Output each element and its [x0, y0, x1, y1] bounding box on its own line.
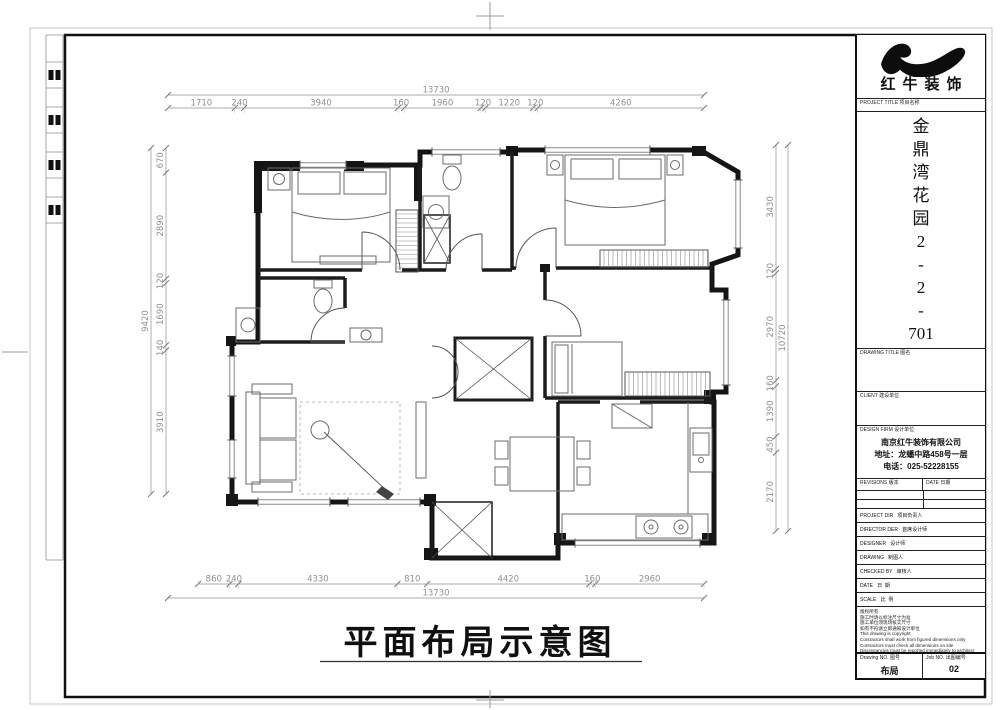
personnel-row: PROJECT DIR 项目负责人: [857, 509, 985, 523]
svg-text:160: 160: [393, 99, 409, 109]
svg-text:2970: 2970: [766, 316, 776, 338]
project-title-char: 2: [917, 230, 926, 253]
svg-text:1220: 1220: [498, 99, 520, 109]
design-firm-label: DESIGN FIRM 设计单位: [857, 426, 985, 434]
interior-walls: [258, 152, 714, 543]
project-title-label: PROJECT TITLE 项目名称: [857, 99, 985, 107]
floor-plan-canvas: 1373017102403940160196012012201204260860…: [0, 0, 1000, 710]
revisions-label: REVISIONS 版本: [857, 479, 923, 490]
project-title-char: 鼎: [913, 138, 930, 161]
personnel-row: DRAWING 制图人: [857, 551, 985, 565]
title-block: 红牛装饰 PROJECT TITLE 项目名称 金鼎湾花园2-2-701 DRA…: [855, 35, 985, 680]
svg-text:140: 140: [156, 340, 166, 356]
notes-block: 版权所有施工时请以标注尺寸为准施工单位须现场核实尺寸如有不符请立即通知设计单位T…: [857, 607, 985, 654]
svg-text:1960: 1960: [432, 99, 454, 109]
svg-text:120: 120: [527, 99, 543, 109]
svg-text:13730: 13730: [422, 589, 449, 599]
personnel-rows: PROJECT DIR 项目负责人DIRECTOR DER 首席设计师DESIG…: [857, 509, 985, 607]
drawing-no-label: Drawing NO. 图号: [857, 654, 922, 662]
revision-row-empty: [857, 500, 985, 509]
design-firm-name: 南京红牛装饰有限公司: [857, 437, 985, 449]
personnel-row: DIRECTOR DER 首席设计师: [857, 523, 985, 537]
svg-text:1390: 1390: [766, 400, 776, 422]
project-title-char: 湾: [913, 161, 930, 184]
svg-text:3910: 3910: [156, 411, 166, 433]
svg-text:120: 120: [475, 99, 491, 109]
client-label: CLIENT 建设单位: [857, 392, 985, 400]
svg-text:13730: 13730: [422, 86, 449, 96]
drawing-sheet: 1373017102403940160196012012201204260860…: [0, 0, 1000, 710]
project-title-char: -: [918, 253, 924, 276]
project-title-char: 2: [917, 276, 926, 299]
project-title-char: 金: [913, 115, 930, 138]
personnel-row: CHECKED BY 审核人: [857, 565, 985, 579]
svg-text:120: 120: [766, 263, 776, 279]
svg-text:120: 120: [156, 273, 166, 289]
personnel-row: DESIGNER 设计师: [857, 537, 985, 551]
job-no-label: Job NO. 出图编号: [923, 654, 985, 662]
drawing-no-value: 布局: [857, 664, 922, 677]
design-firm-info: 南京红牛装饰有限公司 地址：龙蟠中路458号一层 电话：025-52228155: [857, 437, 985, 474]
svg-text:810: 810: [404, 575, 420, 585]
svg-text:3940: 3940: [310, 99, 332, 109]
fold-mark-strip: [46, 35, 63, 560]
svg-text:670: 670: [156, 152, 166, 168]
svg-text:2890: 2890: [156, 215, 166, 237]
project-title: 金鼎湾花园2-2-701: [857, 112, 985, 349]
svg-text:860: 860: [206, 575, 222, 585]
furniture: [236, 155, 712, 540]
project-title-char: 花: [913, 184, 930, 207]
project-title-char: 701: [908, 322, 934, 345]
project-title-char: 园: [913, 207, 930, 230]
svg-text:1710: 1710: [191, 99, 213, 109]
svg-text:1690: 1690: [156, 303, 166, 325]
door-swings: [311, 228, 581, 398]
svg-text:2170: 2170: [766, 481, 776, 503]
project-title-char: -: [918, 299, 924, 322]
svg-text:160: 160: [584, 575, 600, 585]
svg-text:4260: 4260: [610, 99, 632, 109]
svg-text:450: 450: [766, 436, 776, 452]
closet-hatches: [396, 210, 710, 396]
redniu-bull-logo-icon: [866, 37, 976, 77]
job-no-value: 02: [923, 664, 985, 674]
note-line: Discrepancies must be reported immediate…: [860, 648, 985, 654]
svg-text:4330: 4330: [307, 575, 329, 585]
company-logo-cell: 红牛装饰: [857, 37, 985, 99]
svg-text:4420: 4420: [497, 575, 519, 585]
svg-text:160: 160: [766, 375, 776, 391]
drawing-title-label: DRAWING TITLE 图名: [857, 349, 985, 357]
drawing-no-cell: Drawing NO. 图号 布局: [857, 654, 923, 678]
design-firm-phone: 电话：025-52228155: [857, 461, 985, 473]
personnel-row: DATE 日 期: [857, 579, 985, 593]
svg-text:2960: 2960: [639, 575, 661, 585]
exterior-walls: [232, 150, 738, 558]
svg-text:10720: 10720: [778, 324, 788, 351]
company-name: 红牛装饰: [857, 77, 985, 92]
svg-text:3430: 3430: [766, 196, 776, 218]
revision-row-empty: [857, 491, 985, 500]
job-no-cell: Job NO. 出图编号 02: [923, 654, 985, 678]
revisions-header: REVISIONS 版本 DATE 日期: [857, 479, 985, 491]
design-firm-cell: DESIGN FIRM 设计单位 南京红牛装饰有限公司 地址：龙蟠中路458号一…: [857, 426, 985, 479]
date-col-label: DATE 日期: [923, 479, 985, 490]
drawing-number-row: Drawing NO. 图号 布局 Job NO. 出图编号 02: [857, 654, 985, 680]
svg-text:9420: 9420: [141, 310, 151, 332]
personnel-row: SCALE 比 例: [857, 593, 985, 607]
design-firm-address: 地址：龙蟠中路458号一层: [857, 449, 985, 461]
drawing-main-title: 平面布局示意图: [300, 615, 660, 664]
